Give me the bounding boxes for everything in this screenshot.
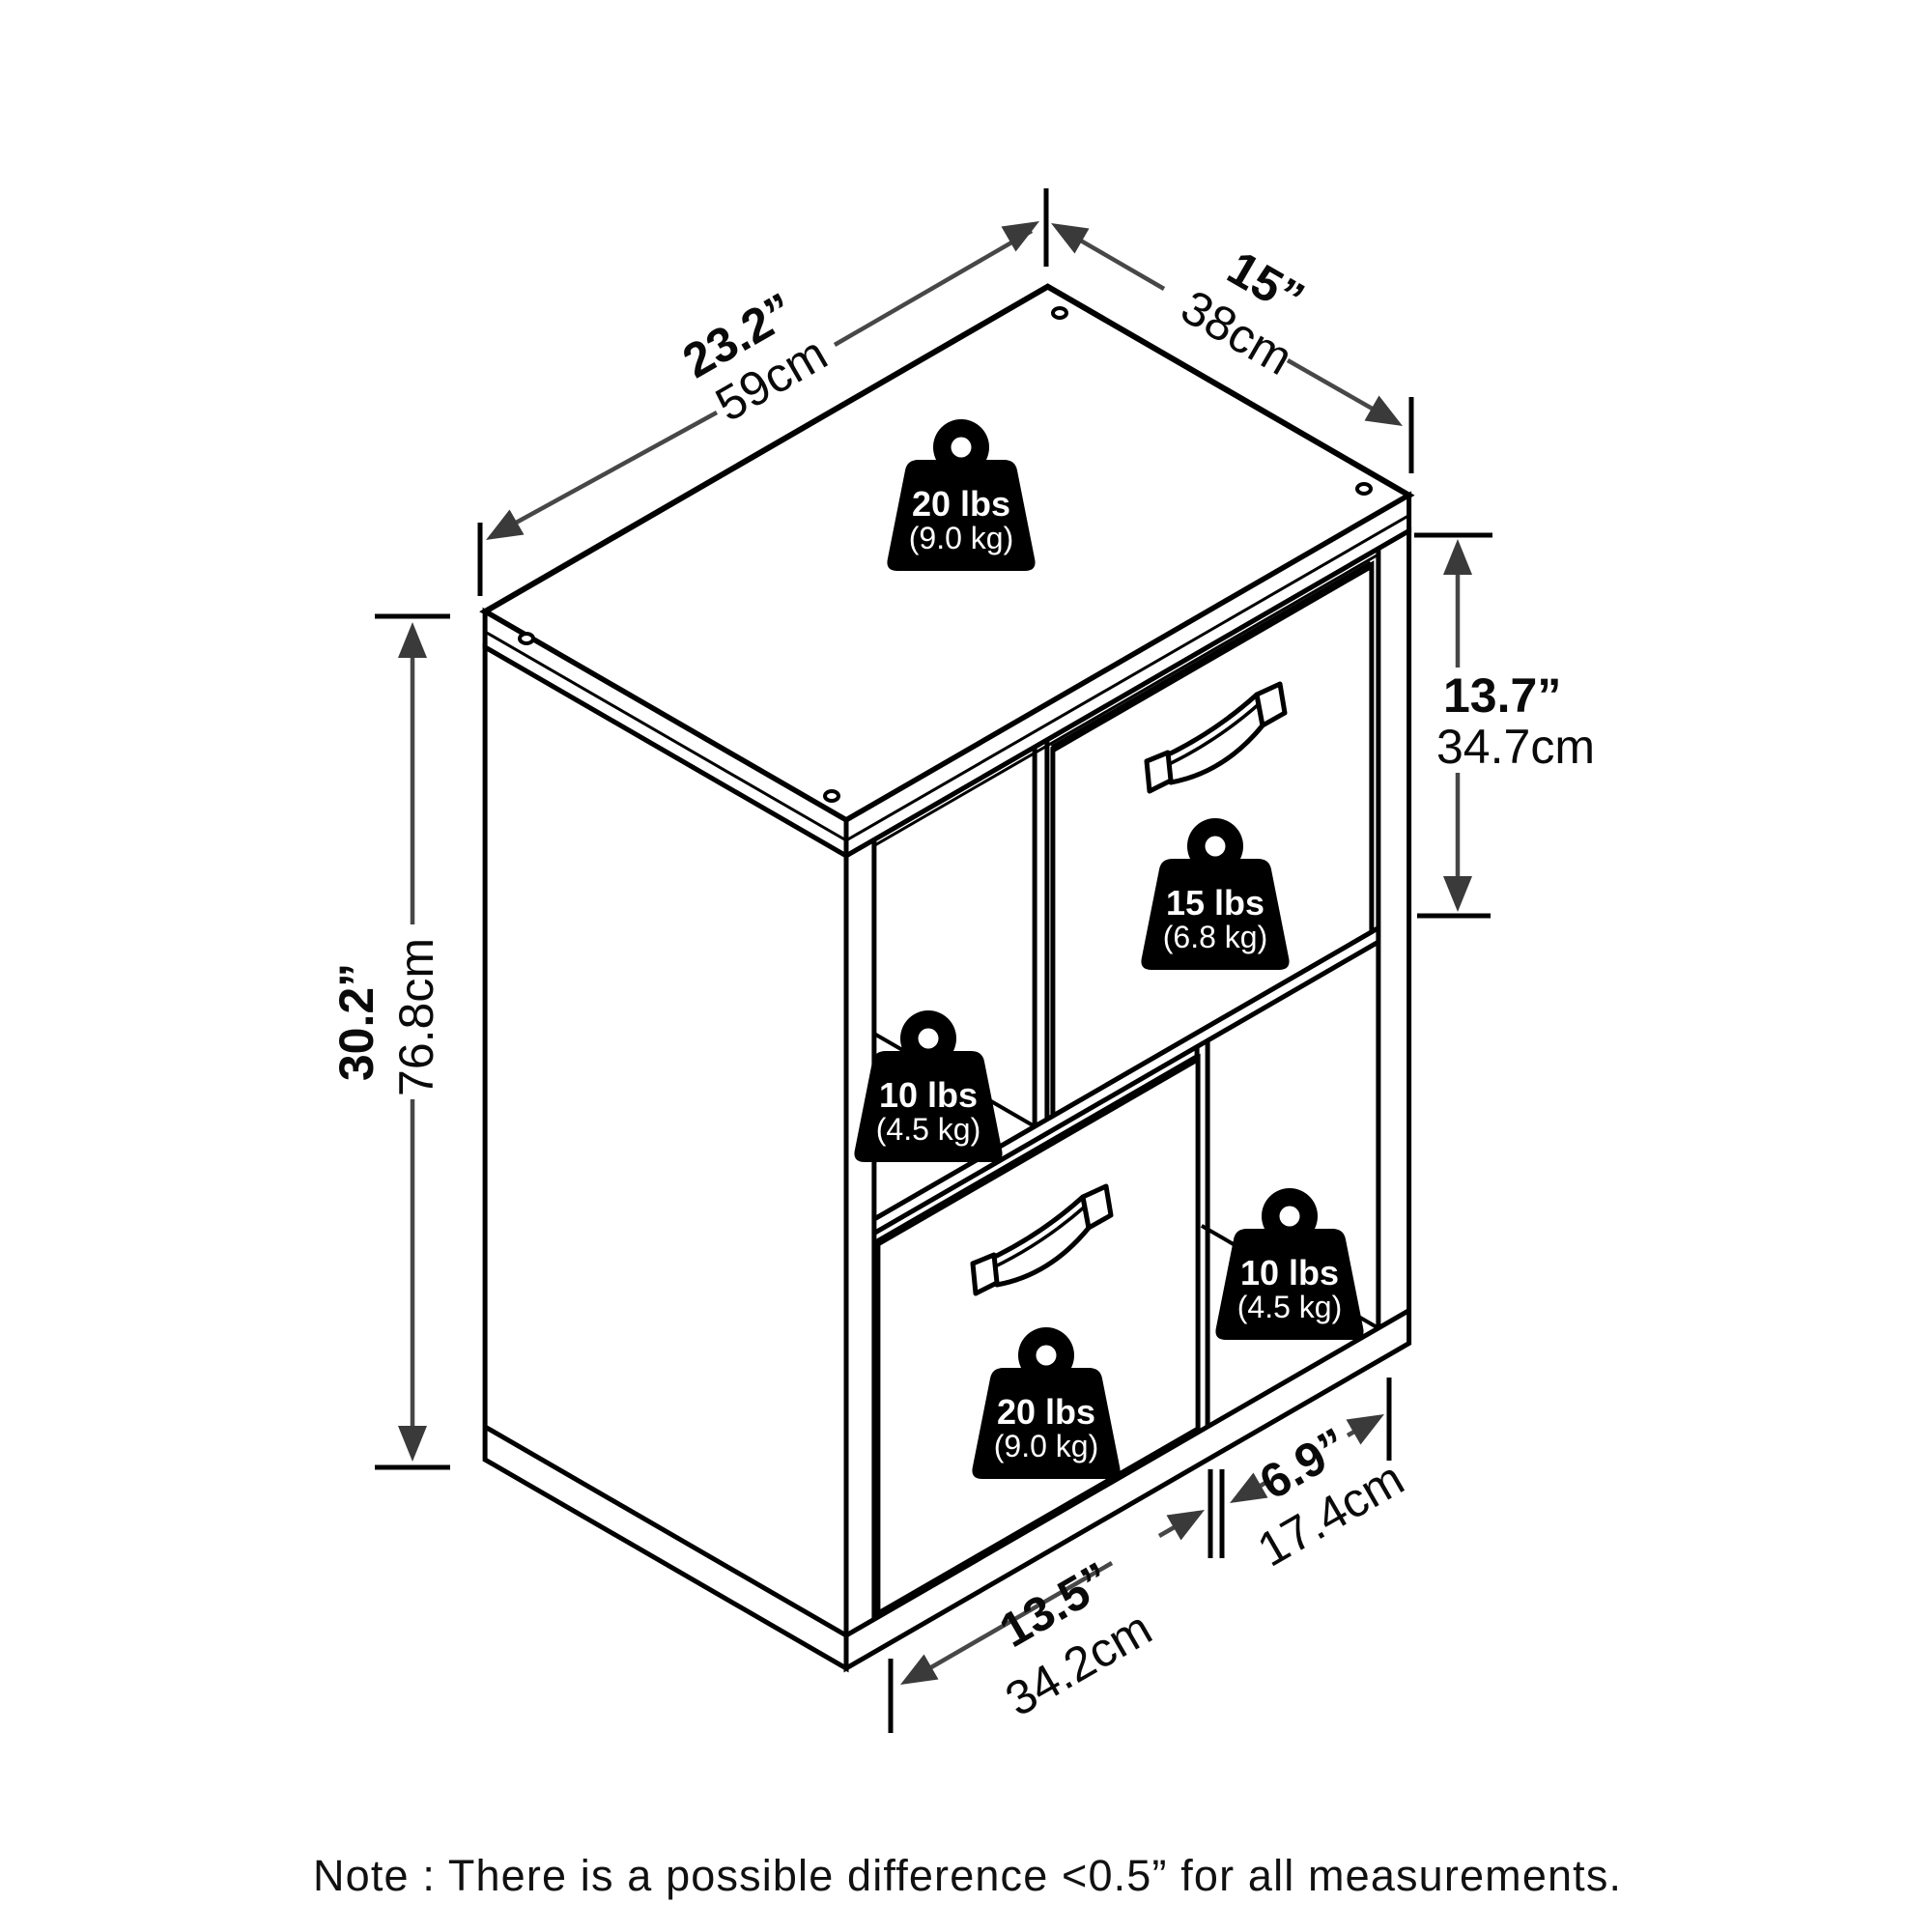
svg-text:76.8cm: 76.8cm <box>389 938 443 1096</box>
svg-text:(9.0 kg): (9.0 kg) <box>909 521 1013 555</box>
svg-text:20 lbs: 20 lbs <box>912 484 1010 524</box>
svg-text:(4.5 kg): (4.5 kg) <box>876 1112 980 1147</box>
svg-text:20 lbs: 20 lbs <box>997 1392 1095 1432</box>
svg-text:15 lbs: 15 lbs <box>1166 883 1264 923</box>
svg-text:Note : There is a possible dif: Note : There is a possible difference <0… <box>313 1851 1621 1900</box>
svg-text:34.7cm: 34.7cm <box>1436 720 1595 774</box>
svg-text:10 lbs: 10 lbs <box>879 1075 978 1115</box>
svg-text:30.2”: 30.2” <box>329 963 384 1081</box>
svg-text:13.7”: 13.7” <box>1443 668 1561 723</box>
svg-text:(4.5 kg): (4.5 kg) <box>1237 1290 1342 1324</box>
svg-text:10 lbs: 10 lbs <box>1240 1253 1339 1293</box>
svg-text:(9.0 kg): (9.0 kg) <box>994 1429 1098 1463</box>
svg-text:(6.8 kg): (6.8 kg) <box>1163 920 1267 954</box>
